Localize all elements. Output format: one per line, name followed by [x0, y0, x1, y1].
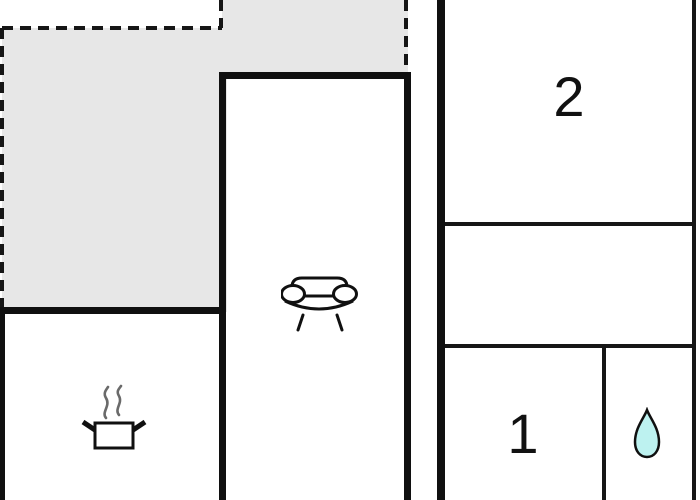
floor-plan: 2 1	[0, 0, 700, 500]
room-2-label: 2	[553, 69, 584, 125]
sofa-icon	[281, 275, 359, 333]
terrace-dashed-border-top-corner	[219, 0, 223, 28]
wall-living-room-right	[404, 72, 411, 500]
wall-room2-bottom	[445, 222, 696, 226]
wall-hallway-bottom	[445, 344, 696, 348]
room-1-label: 1	[507, 406, 538, 462]
wall-living-room-left	[219, 72, 226, 500]
terrace-dashed-border-left	[0, 28, 4, 307]
wall-room1-bathroom-divider	[602, 344, 606, 500]
wall-living-room-top	[219, 72, 411, 79]
water-drop-shape	[635, 410, 659, 457]
terrace-area-lower	[2, 28, 227, 312]
water-drop-icon	[630, 407, 664, 461]
terrace-dashed-border-right	[404, 0, 408, 72]
cooking-pot-icon	[76, 384, 150, 454]
wall-kitchen-left	[0, 307, 5, 500]
wall-right-section-right	[692, 0, 696, 500]
wall-right-section-left	[437, 0, 445, 500]
terrace-dashed-border-top	[2, 26, 222, 30]
steam-icon	[105, 386, 121, 418]
wall-kitchen-top	[0, 307, 226, 314]
terrace-area-upper	[222, 0, 408, 78]
